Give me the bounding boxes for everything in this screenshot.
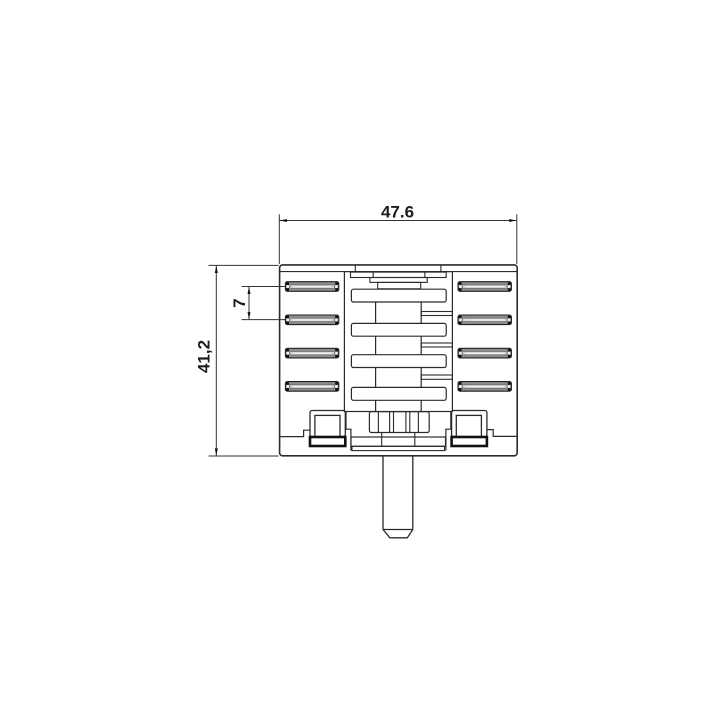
svg-text:7: 7 xyxy=(230,298,249,307)
svg-text:41,2: 41,2 xyxy=(195,340,214,373)
svg-text:47.6: 47.6 xyxy=(381,203,414,222)
